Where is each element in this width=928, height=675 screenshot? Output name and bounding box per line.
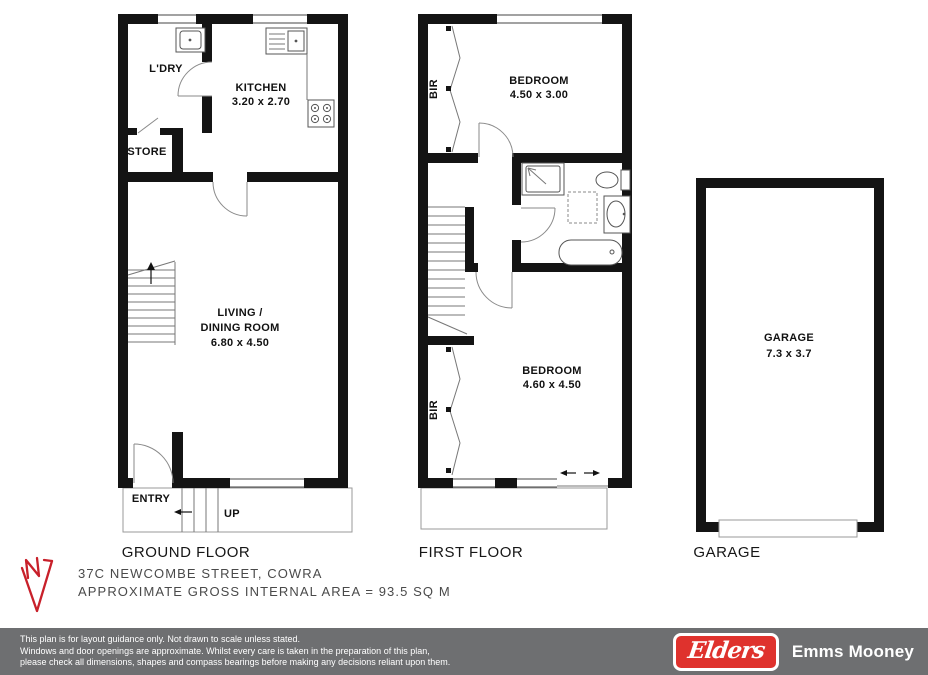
elders-logo-text: Elders	[686, 637, 766, 667]
elders-logo: Elders	[673, 633, 779, 671]
floor-plan-page: { "colors": { "wall": "#141414", "compas…	[0, 0, 928, 675]
bedroom1-dims: 4.50 x 3.00	[510, 89, 568, 101]
bath-mat	[568, 192, 597, 223]
footer-bar: This plan is for layout guidance only. N…	[0, 628, 928, 675]
north-compass-icon	[22, 558, 52, 611]
kitchen-label: KITCHEN	[236, 82, 287, 94]
ground-floor-walls	[118, 14, 348, 488]
garage-plan: GARAGE 7.3 x 3.7 GARAGE	[693, 178, 884, 561]
bedroom1-label: BEDROOM	[509, 75, 569, 87]
garage-title: GARAGE	[693, 544, 760, 561]
brand-area: Elders Emms Mooney	[673, 633, 914, 671]
disclaimer-line-1: This plan is for layout guidance only. N…	[20, 634, 673, 646]
toilet-icon	[596, 170, 630, 190]
bir-top-label: BIR	[428, 79, 440, 99]
living-label-line2: DINING ROOM	[200, 322, 279, 334]
ground-floor-plan: L'DRY KITCHEN 3.20 x 2.70 STORE LIVING /…	[118, 14, 352, 561]
floor-plan-canvas: L'DRY KITCHEN 3.20 x 2.70 STORE LIVING /…	[0, 0, 928, 628]
store-label: STORE	[127, 146, 166, 158]
vanity-basin-icon	[604, 196, 630, 233]
bir-top-doors-icon	[446, 26, 460, 152]
first-floor-stairs	[428, 207, 467, 334]
garage-room-dims: 7.3 x 3.7	[766, 348, 812, 360]
laundry-tub-icon	[176, 28, 205, 52]
first-floor-doors	[476, 123, 555, 308]
internal-area: APPROXIMATE GROSS INTERNAL AREA = 93.5 S…	[78, 584, 451, 599]
agency-name: Emms Mooney	[792, 642, 914, 662]
bedroom2-dims: 4.60 x 4.50	[523, 379, 581, 391]
ground-floor-title: GROUND FLOOR	[122, 544, 251, 561]
sliding-door-arrows-icon	[560, 470, 600, 476]
disclaimer-line-3: please check all dimensions, shapes and …	[20, 657, 673, 669]
cooktop-icon	[308, 100, 334, 127]
stairs-up-arrow-icon	[147, 262, 155, 284]
bir-bottom-doors-icon	[446, 347, 460, 475]
ground-floor-stairs	[128, 261, 175, 345]
bir-bottom-label: BIR	[428, 400, 440, 420]
bathtub-icon	[559, 240, 622, 265]
first-floor-title: FIRST FLOOR	[419, 544, 523, 561]
entry-label: ENTRY	[132, 493, 171, 505]
disclaimer-text: This plan is for layout guidance only. N…	[20, 634, 673, 669]
living-label-line1: LIVING /	[217, 307, 262, 319]
up-label: UP	[224, 508, 240, 520]
garage-door	[719, 520, 857, 537]
shower-icon	[522, 163, 564, 195]
balcony	[421, 488, 607, 529]
disclaimer-line-2: Windows and door openings are approximat…	[20, 646, 673, 658]
kitchen-sink-icon	[266, 28, 307, 54]
garage-room-label: GARAGE	[764, 332, 814, 344]
first-floor-plan: BIR BEDROOM 4.50 x 3.00 BIR BEDROOM 4.60…	[418, 14, 632, 561]
property-address: 37C NEWCOMBE STREET, COWRA	[78, 566, 323, 581]
ldry-label: L'DRY	[149, 63, 183, 75]
kitchen-dims: 3.20 x 2.70	[232, 96, 290, 108]
living-dims: 6.80 x 4.50	[211, 337, 269, 349]
bedroom2-label: BEDROOM	[522, 365, 582, 377]
